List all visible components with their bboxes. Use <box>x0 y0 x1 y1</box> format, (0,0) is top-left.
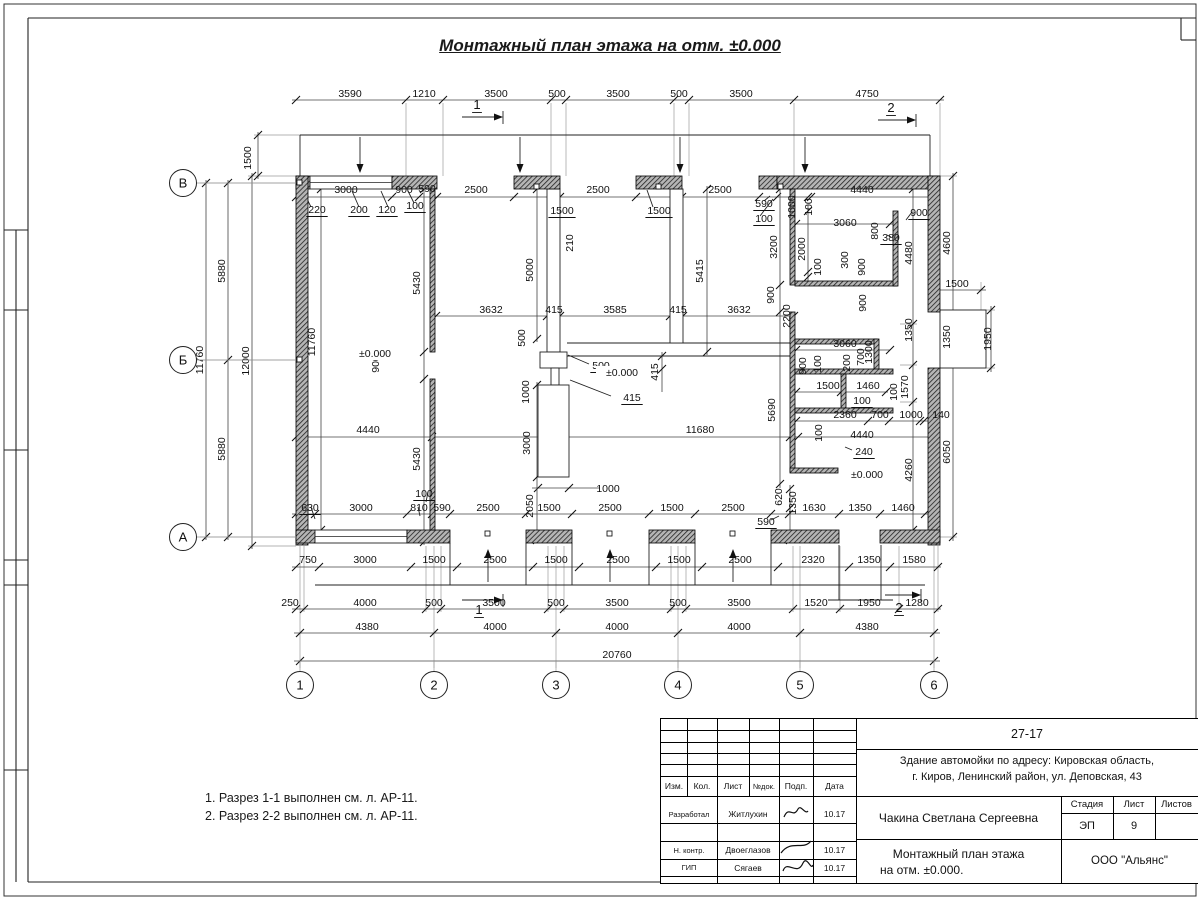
svg-text:3000: 3000 <box>353 554 377 566</box>
svg-text:1500: 1500 <box>544 554 568 566</box>
tb-doc-number: 27-17 <box>856 719 1198 749</box>
svg-text:4000: 4000 <box>353 597 377 609</box>
svg-text:3500: 3500 <box>484 88 508 100</box>
svg-text:Б: Б <box>179 353 188 368</box>
svg-text:4260: 4260 <box>903 458 915 482</box>
svg-text:6: 6 <box>930 678 937 693</box>
svg-text:4: 4 <box>674 678 681 693</box>
signature-icon <box>777 837 815 879</box>
svg-text:5000: 5000 <box>524 258 536 282</box>
svg-text:1500: 1500 <box>242 146 254 170</box>
svg-text:415: 415 <box>623 392 641 404</box>
svg-text:4440: 4440 <box>850 184 874 196</box>
svg-text:1: 1 <box>296 678 303 693</box>
svg-text:11760: 11760 <box>306 328 318 357</box>
svg-text:2000: 2000 <box>796 237 808 261</box>
svg-text:3500: 3500 <box>605 597 629 609</box>
tb-line <box>661 796 856 797</box>
tb-drawing-title-2: на отм. ±0.000. <box>856 861 1085 879</box>
svg-text:20760: 20760 <box>602 649 631 661</box>
tb-sheets-value <box>1155 813 1198 839</box>
svg-text:120: 120 <box>378 204 396 216</box>
tb-role-3: ГИП <box>661 859 717 876</box>
signature-icon <box>781 803 811 823</box>
tb-col-data: Дата <box>813 776 856 796</box>
svg-text:3060: 3060 <box>833 217 857 229</box>
note-line-2: 2. Разрез 2-2 выполнен см. л. АР-11. <box>205 807 418 825</box>
svg-text:3200: 3200 <box>768 235 780 259</box>
tb-sheet-label: Лист <box>1113 796 1155 813</box>
svg-text:620: 620 <box>773 488 785 506</box>
svg-text:±0.000: ±0.000 <box>359 348 391 360</box>
title-block: Изм. Кол. Лист №док. Подп. Дата Разработ… <box>660 718 1198 884</box>
tb-col-izm: Изм. <box>661 776 687 796</box>
svg-text:500: 500 <box>669 597 687 609</box>
svg-text:5430: 5430 <box>411 447 423 471</box>
svg-text:810: 810 <box>410 502 428 514</box>
svg-text:200: 200 <box>841 354 853 372</box>
svg-text:100: 100 <box>406 200 424 212</box>
svg-text:3590: 3590 <box>338 88 362 100</box>
svg-text:200: 200 <box>350 204 368 216</box>
svg-text:100: 100 <box>888 383 900 401</box>
svg-text:В: В <box>179 176 188 191</box>
svg-text:2500: 2500 <box>483 554 507 566</box>
svg-text:1000: 1000 <box>786 195 798 219</box>
svg-text:900: 900 <box>856 258 868 276</box>
svg-text:4480: 4480 <box>903 241 915 265</box>
svg-text:1000: 1000 <box>596 483 620 495</box>
svg-text:2: 2 <box>895 600 902 615</box>
svg-text:900: 900 <box>857 294 869 312</box>
svg-text:250: 250 <box>281 597 299 609</box>
svg-text:100: 100 <box>803 198 815 216</box>
svg-text:4000: 4000 <box>605 621 629 633</box>
tb-date-3: 10.17 <box>813 859 856 876</box>
svg-text:1500: 1500 <box>422 554 446 566</box>
svg-text:3632: 3632 <box>479 304 503 316</box>
svg-text:2500: 2500 <box>476 502 500 514</box>
svg-text:900: 900 <box>797 357 809 375</box>
svg-text:А: А <box>179 530 188 545</box>
tb-line <box>661 823 856 824</box>
svg-text:5430: 5430 <box>411 271 423 295</box>
svg-text:590: 590 <box>433 502 451 514</box>
svg-text:2360: 2360 <box>833 409 857 421</box>
svg-text:±0.000: ±0.000 <box>606 367 638 379</box>
svg-text:1950: 1950 <box>857 597 881 609</box>
svg-text:2: 2 <box>887 100 894 115</box>
svg-text:1350: 1350 <box>941 325 953 349</box>
svg-text:2: 2 <box>430 678 437 693</box>
svg-text:500: 500 <box>670 88 688 100</box>
tb-company: ООО "Альянс" <box>1061 839 1198 883</box>
svg-text:590: 590 <box>757 516 775 528</box>
tb-col-kol: Кол. <box>687 776 717 796</box>
notes-block: 1. Разрез 1-1 выполнен см. л. АР-11. 2. … <box>205 789 418 825</box>
svg-text:1570: 1570 <box>899 375 911 399</box>
svg-text:11680: 11680 <box>686 424 715 436</box>
tb-line <box>661 876 856 877</box>
tb-name-1: Житлухин <box>717 805 779 823</box>
svg-text:100: 100 <box>853 395 871 407</box>
page-title: Монтажный план этажа на отм. ±0.000 <box>439 36 781 56</box>
svg-text:240: 240 <box>855 446 873 458</box>
svg-text:4000: 4000 <box>727 621 751 633</box>
svg-text:220: 220 <box>308 204 326 216</box>
tb-line <box>661 730 856 731</box>
svg-text:100: 100 <box>415 488 433 500</box>
svg-text:1950: 1950 <box>982 327 994 351</box>
tb-line <box>856 749 1198 750</box>
svg-text:4600: 4600 <box>941 231 953 255</box>
tb-line <box>661 753 856 754</box>
svg-text:5415: 5415 <box>694 259 706 283</box>
tb-line <box>661 764 856 765</box>
svg-text:1630: 1630 <box>802 502 826 514</box>
tb-author: Чакина Светлана Сергеевна <box>856 796 1061 839</box>
svg-text:1000: 1000 <box>899 409 923 421</box>
svg-text:1520: 1520 <box>804 597 828 609</box>
svg-text:3000: 3000 <box>349 502 373 514</box>
tb-role-1: Разработал <box>661 805 717 823</box>
svg-text:500: 500 <box>516 329 528 347</box>
tb-stage-value: ЭП <box>1061 813 1113 839</box>
svg-text:100: 100 <box>813 424 825 442</box>
tb-col-dok: №док. <box>749 776 779 796</box>
svg-text:3: 3 <box>552 678 559 693</box>
svg-text:900: 900 <box>395 184 413 196</box>
svg-text:1350: 1350 <box>903 318 915 342</box>
tb-col-podp: Подп. <box>779 776 813 796</box>
svg-text:4000: 4000 <box>483 621 507 633</box>
tb-stage-label: Стадия <box>1061 796 1113 813</box>
svg-text:750: 750 <box>299 554 317 566</box>
svg-text:2500: 2500 <box>721 502 745 514</box>
tb-name-3: Сягаев <box>717 859 779 876</box>
svg-text:500: 500 <box>548 88 566 100</box>
svg-text:100: 100 <box>755 213 773 225</box>
svg-text:700: 700 <box>855 348 867 366</box>
svg-text:5: 5 <box>796 678 803 693</box>
svg-text:4380: 4380 <box>355 621 379 633</box>
svg-text:2500: 2500 <box>586 184 610 196</box>
drawing-sheet: { "title": "Монтажный план этажа на отм.… <box>0 0 1200 900</box>
svg-text:6050: 6050 <box>941 440 953 464</box>
svg-text:630: 630 <box>301 502 319 514</box>
svg-text:1500: 1500 <box>816 380 840 392</box>
tb-date-2: 10.17 <box>813 841 856 859</box>
svg-text:1500: 1500 <box>550 205 574 217</box>
svg-text:3500: 3500 <box>727 597 751 609</box>
tb-sheet-value: 9 <box>1113 813 1155 839</box>
svg-text:5880: 5880 <box>216 259 228 283</box>
svg-text:1350: 1350 <box>787 491 799 515</box>
svg-text:415: 415 <box>545 304 563 316</box>
svg-text:4440: 4440 <box>850 429 874 441</box>
svg-text:4750: 4750 <box>855 88 879 100</box>
svg-text:1280: 1280 <box>905 597 929 609</box>
svg-text:800: 800 <box>869 222 881 240</box>
svg-text:5880: 5880 <box>216 437 228 461</box>
svg-text:2050: 2050 <box>524 494 536 518</box>
svg-text:3500: 3500 <box>606 88 630 100</box>
svg-text:2500: 2500 <box>728 554 752 566</box>
svg-text:3060: 3060 <box>833 338 857 350</box>
svg-text:3500: 3500 <box>729 88 753 100</box>
tb-name-2: Двоеглазов <box>717 841 779 859</box>
svg-text:2500: 2500 <box>464 184 488 196</box>
svg-text:1000: 1000 <box>520 380 532 404</box>
svg-text:300: 300 <box>839 251 851 269</box>
svg-text:590: 590 <box>755 198 773 210</box>
svg-text:415: 415 <box>649 363 661 381</box>
svg-text:1210: 1210 <box>412 88 436 100</box>
svg-text:1460: 1460 <box>856 380 880 392</box>
svg-text:1500: 1500 <box>660 502 684 514</box>
svg-text:4380: 4380 <box>855 621 879 633</box>
tb-address-2: г. Киров, Ленинский район, ул. Деповская… <box>856 768 1198 786</box>
svg-text:900: 900 <box>765 286 777 304</box>
svg-text:1350: 1350 <box>857 554 881 566</box>
svg-text:100: 100 <box>812 258 824 276</box>
svg-text:2500: 2500 <box>598 502 622 514</box>
svg-text:1500: 1500 <box>537 502 561 514</box>
svg-text:2500: 2500 <box>708 184 732 196</box>
svg-text:500: 500 <box>547 597 565 609</box>
svg-text:5690: 5690 <box>766 398 778 422</box>
svg-text:700: 700 <box>871 409 889 421</box>
svg-text:100: 100 <box>812 355 824 373</box>
svg-text:3632: 3632 <box>727 304 751 316</box>
svg-text:4440: 4440 <box>356 424 380 436</box>
svg-text:3000: 3000 <box>334 184 358 196</box>
svg-text:140: 140 <box>932 409 950 421</box>
svg-text:±0.000: ±0.000 <box>851 469 883 481</box>
svg-text:1580: 1580 <box>902 554 926 566</box>
svg-text:900: 900 <box>910 207 928 219</box>
svg-text:12000: 12000 <box>240 346 252 375</box>
tb-date-1: 10.17 <box>813 805 856 823</box>
svg-text:500: 500 <box>425 597 443 609</box>
svg-text:380: 380 <box>882 232 900 244</box>
svg-text:3000: 3000 <box>521 431 533 455</box>
svg-text:1500: 1500 <box>667 554 691 566</box>
tb-role-2: Н. контр. <box>661 841 717 859</box>
svg-text:3500: 3500 <box>482 597 506 609</box>
svg-text:1350: 1350 <box>848 502 872 514</box>
svg-text:2320: 2320 <box>801 554 825 566</box>
tb-col-list: Лист <box>717 776 749 796</box>
svg-text:1500: 1500 <box>945 278 969 290</box>
tb-sheets-label: Листов <box>1155 796 1198 813</box>
tb-line <box>661 742 856 743</box>
note-line-1: 1. Разрез 1-1 выполнен см. л. АР-11. <box>205 789 418 807</box>
svg-text:415: 415 <box>669 304 687 316</box>
svg-text:1: 1 <box>473 97 480 112</box>
svg-text:3585: 3585 <box>603 304 627 316</box>
svg-text:590: 590 <box>418 183 436 195</box>
svg-text:2500: 2500 <box>606 554 630 566</box>
svg-text:2200: 2200 <box>781 304 793 328</box>
svg-text:210: 210 <box>564 234 576 252</box>
svg-text:1500: 1500 <box>647 205 671 217</box>
svg-text:1460: 1460 <box>891 502 915 514</box>
